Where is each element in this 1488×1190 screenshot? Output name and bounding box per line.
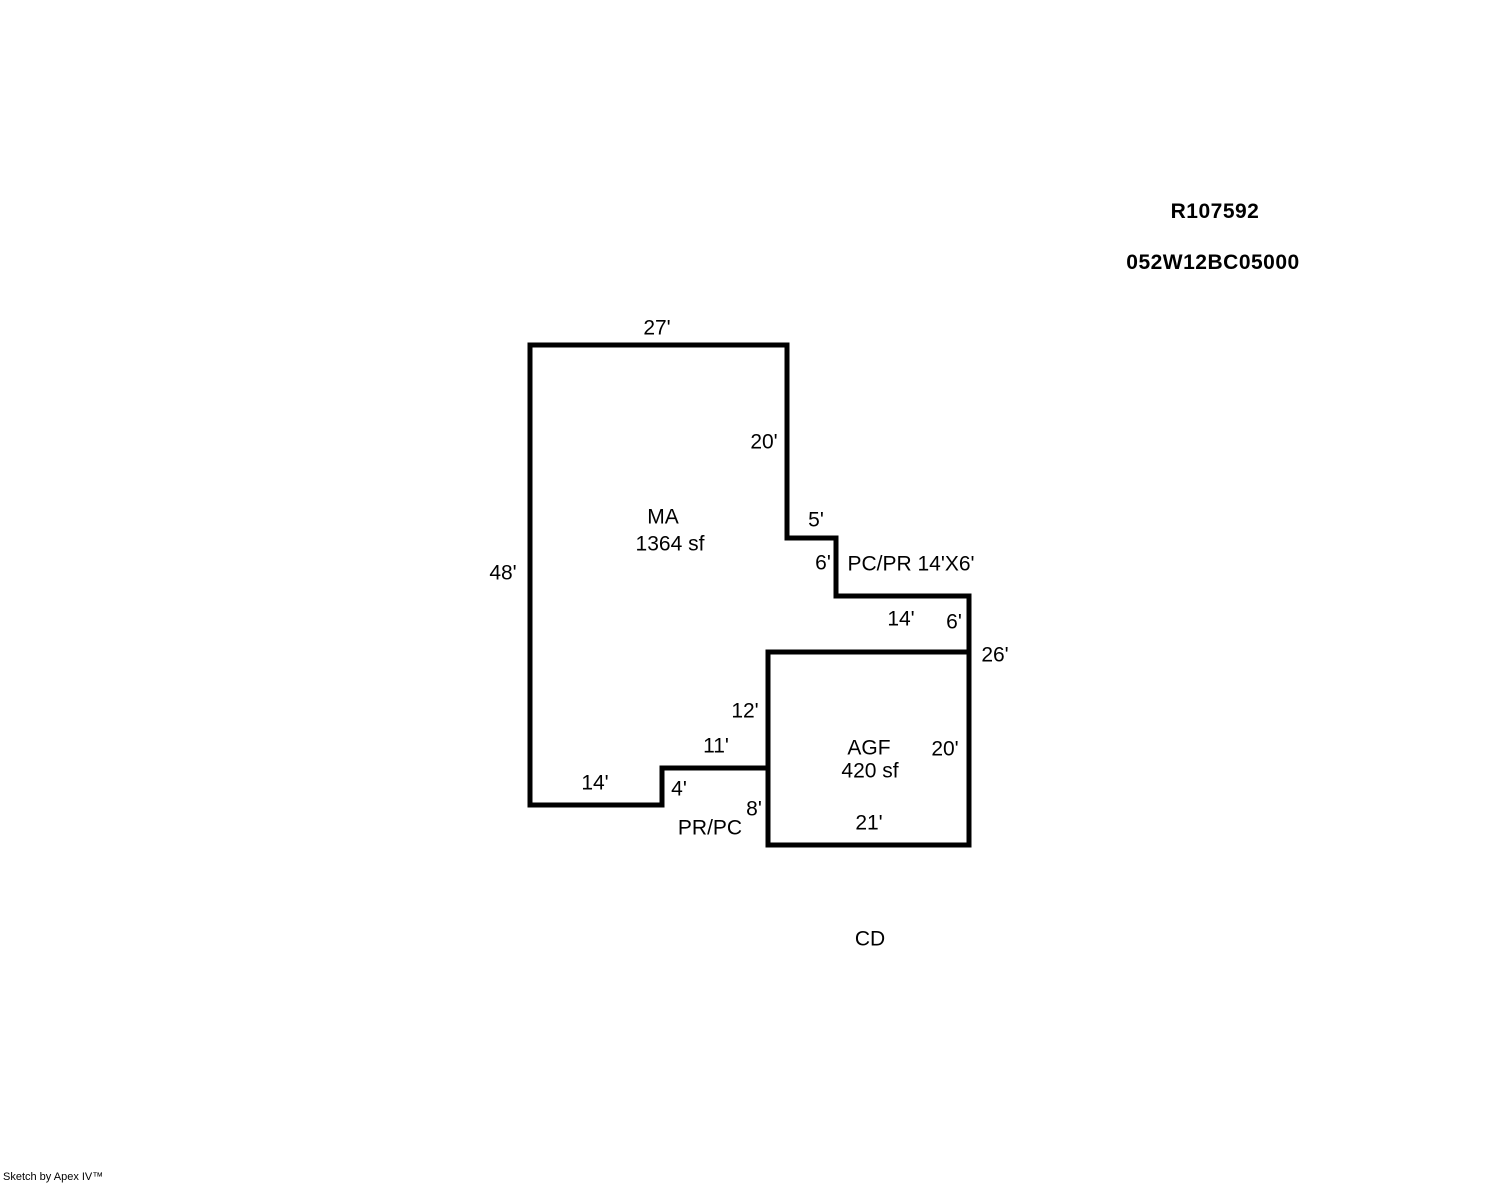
dim-agf-right-20: 20' xyxy=(931,737,958,760)
floor-plan-drawing: 27'20'MA1364 sf48'5'6'PC/PR 14'X6'14'6'2… xyxy=(0,0,1488,1190)
dim-ma-top-27: 27' xyxy=(643,316,670,339)
dim-step-6: 6' xyxy=(815,551,831,574)
appraisal-sketch-page: R107592 052W12BC05000 27'20'MA1364 sf48'… xyxy=(0,0,1488,1190)
dim-agf-bottom-21: 21' xyxy=(855,811,882,834)
note-prpc: PR/PC xyxy=(678,816,742,839)
sketch-credit: Sketch by Apex IV™ xyxy=(3,1171,103,1183)
note-pcpr: PC/PR 14'X6' xyxy=(847,552,974,575)
dim-ma-right-20: 20' xyxy=(750,430,777,453)
dim-right-26: 26' xyxy=(981,643,1008,666)
dim-pcpr-14: 14' xyxy=(887,607,914,630)
dim-ma-left-48: 48' xyxy=(489,561,516,584)
dim-ma-bottom-14: 14' xyxy=(581,771,608,794)
dim-agf-left-8: 8' xyxy=(746,797,762,820)
area-ma-code: MA xyxy=(647,505,679,528)
area-agf-code: AGF xyxy=(847,736,890,759)
area-ma-sqft: 1364 sf xyxy=(636,532,705,555)
dim-ma-bottom-11: 11' xyxy=(703,734,729,757)
area-agf-sqft: 420 sf xyxy=(841,759,898,782)
dim-agf-left-12: 12' xyxy=(731,699,758,722)
dim-step-5: 5' xyxy=(808,508,824,531)
dim-step-4: 4' xyxy=(671,777,687,800)
area-cd-code: CD xyxy=(855,927,885,950)
dim-pcpr-6: 6' xyxy=(946,610,962,633)
